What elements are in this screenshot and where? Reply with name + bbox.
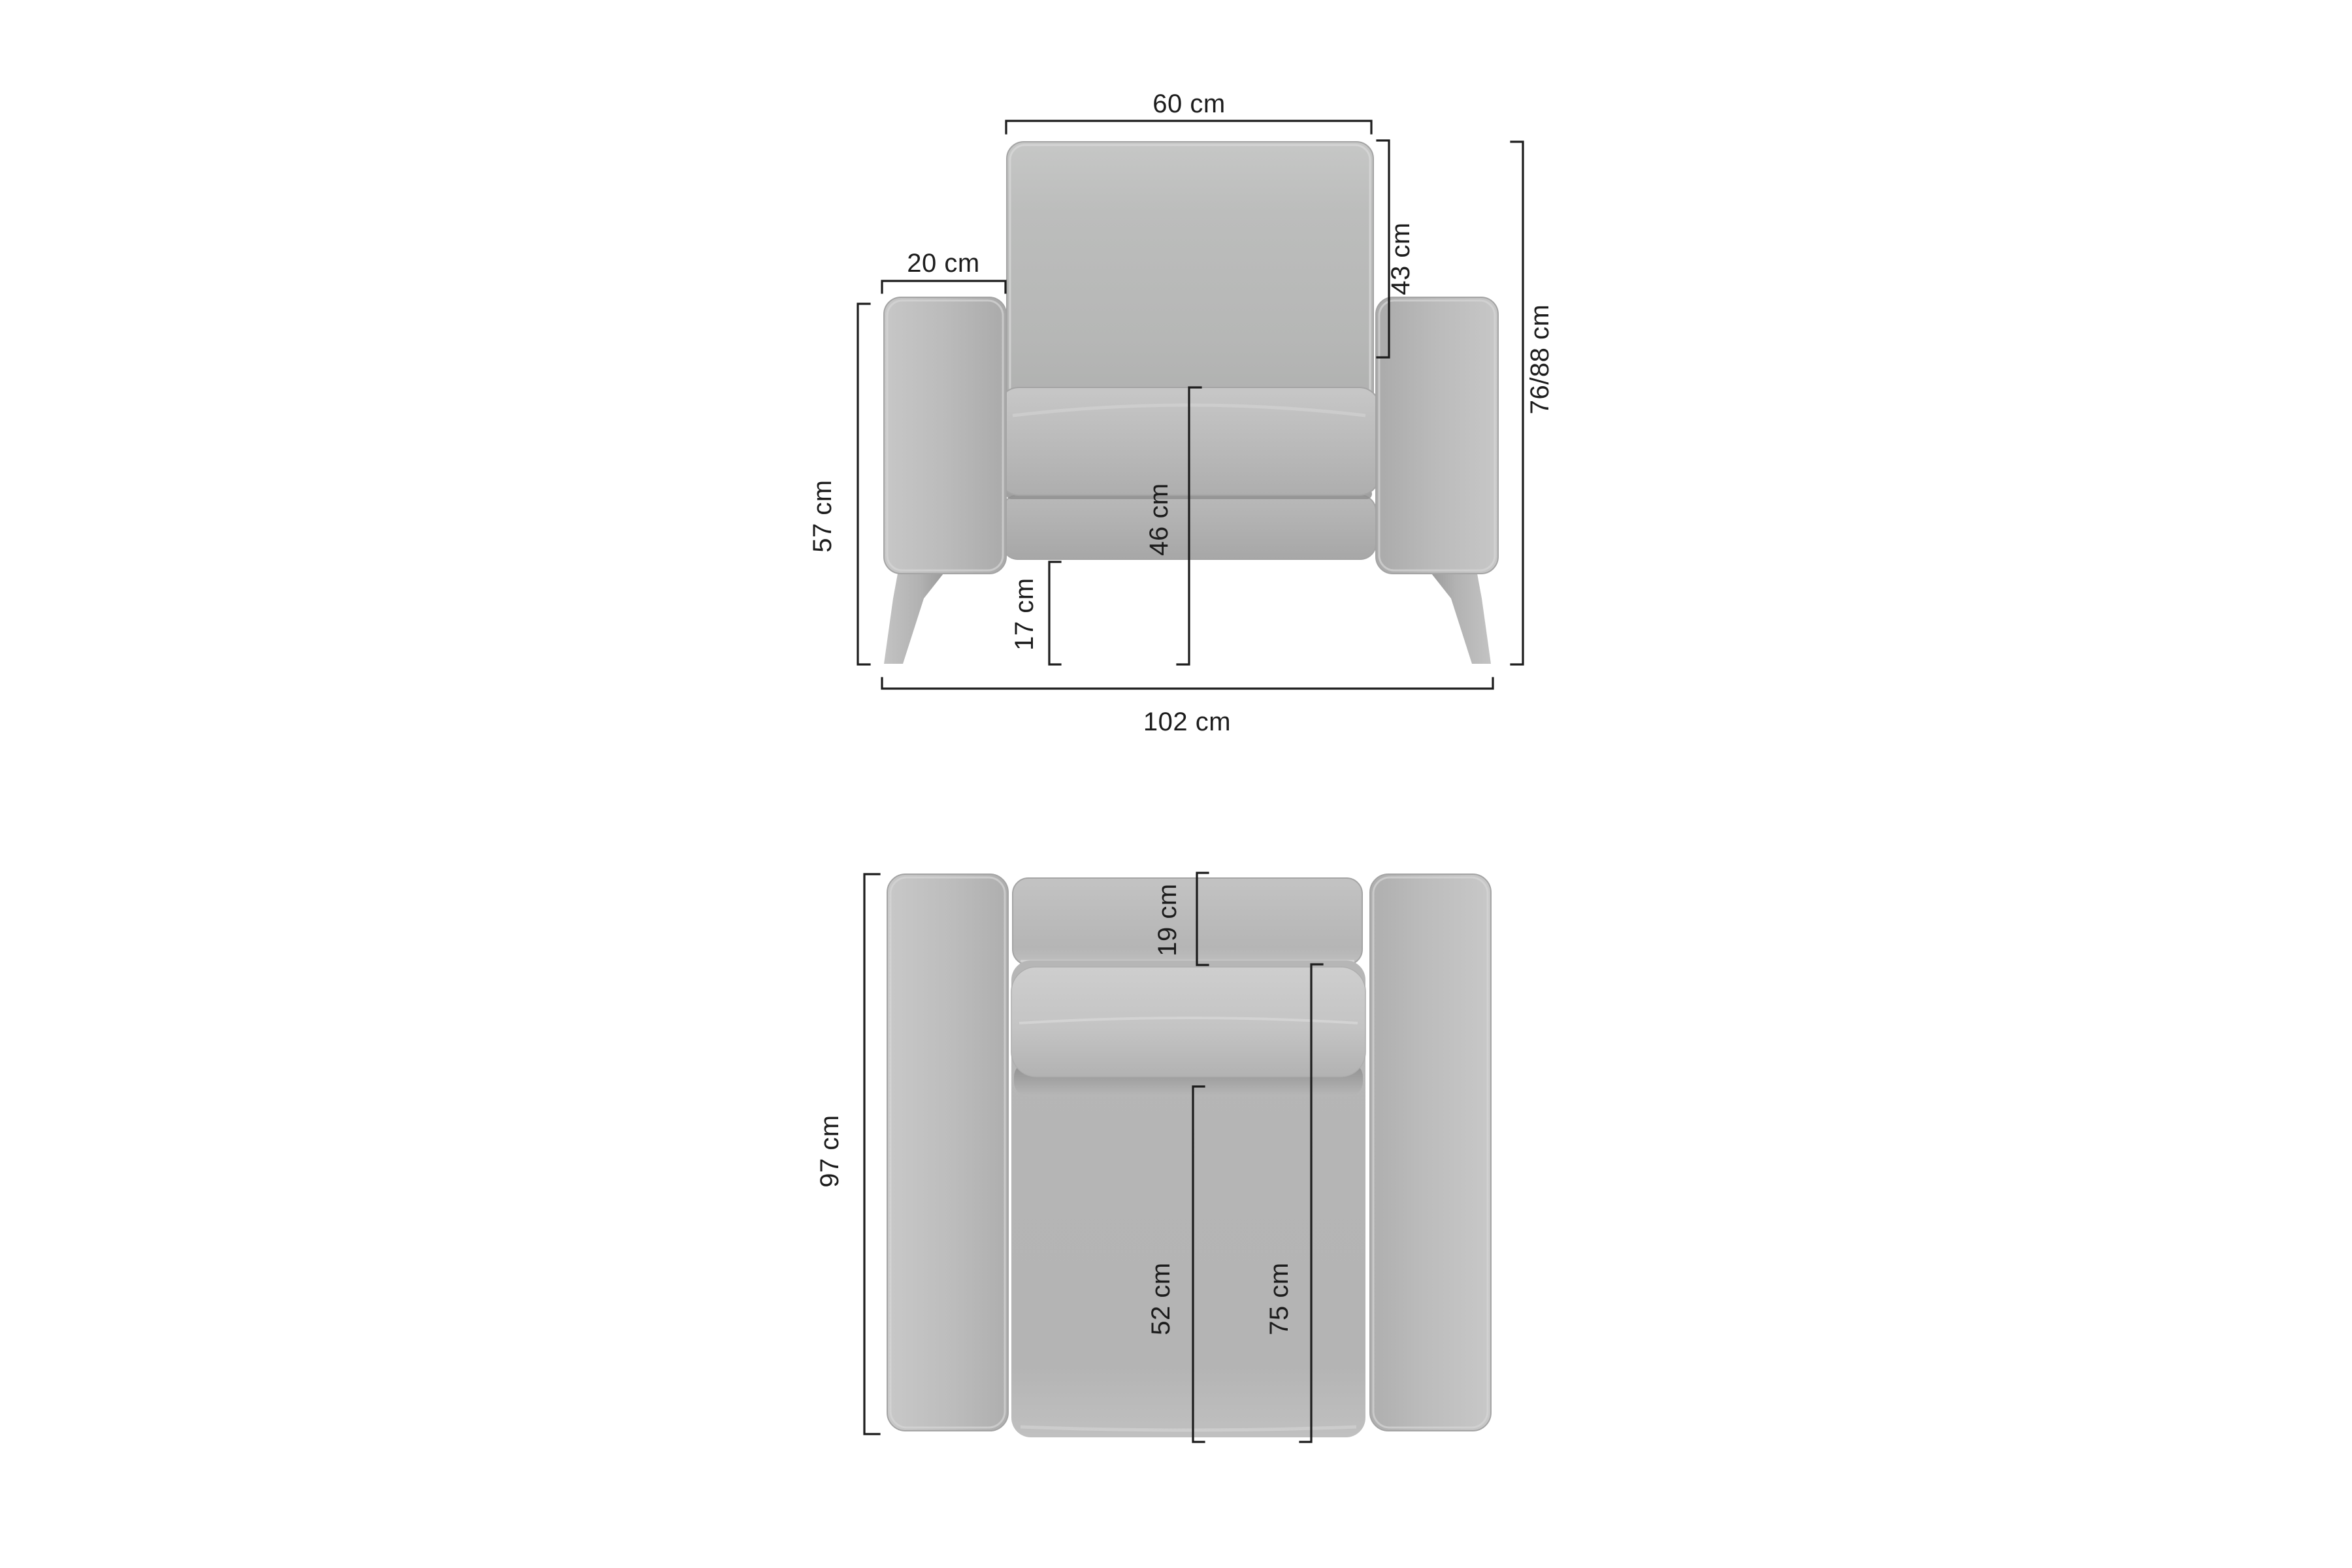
dim-armrest-height: 57 cm: [808, 304, 870, 664]
diagram-canvas: 60 cm 20 cm 43 cm 76/88 cm 57 cm 46 cm: [0, 0, 2352, 1568]
dim-overall-height-label: 76/88 cm: [1526, 304, 1554, 415]
dim-armrest-width-label: 20 cm: [907, 249, 979, 278]
top-view: 97 cm 19 cm 75 cm 52 cm: [815, 873, 1491, 1442]
dim-armrest-width: 20 cm: [882, 249, 1005, 293]
dim-seat-depth-label: 52 cm: [1147, 1262, 1175, 1335]
front-backrest-cushion: [1007, 142, 1373, 423]
dim-leg-height-label: 17 cm: [1010, 578, 1039, 650]
top-left-armrest: [887, 874, 1008, 1431]
dim-overall-depth: 97 cm: [815, 874, 879, 1434]
dim-overall-width: 102 cm: [882, 678, 1493, 736]
dim-backrest-width-label: 60 cm: [1152, 90, 1225, 118]
dim-overall-width-label: 102 cm: [1143, 708, 1231, 736]
dim-overall-height: 76/88 cm: [1511, 142, 1554, 664]
dim-backrest-height-label: 43 cm: [1386, 222, 1415, 295]
dim-overall-depth-label: 97 cm: [815, 1115, 844, 1187]
dim-seat-height-label: 46 cm: [1145, 483, 1173, 555]
front-view: 60 cm 20 cm 43 cm 76/88 cm 57 cm 46 cm: [808, 90, 1554, 736]
top-right-armrest: [1370, 874, 1491, 1431]
front-left-leg: [884, 574, 943, 664]
top-backrest: [1013, 878, 1362, 965]
dim-armrest-height-label: 57 cm: [808, 480, 837, 552]
dim-backrest-width: 60 cm: [1006, 90, 1371, 133]
front-right-leg: [1431, 574, 1491, 664]
dim-leg-height: 17 cm: [1010, 562, 1060, 664]
front-left-armrest: [884, 297, 1006, 574]
dim-inner-depth-label: 75 cm: [1265, 1262, 1294, 1335]
front-right-armrest: [1376, 297, 1498, 574]
dim-backrest-depth-label: 19 cm: [1153, 883, 1182, 956]
furniture-dimension-diagram: 60 cm 20 cm 43 cm 76/88 cm 57 cm 46 cm: [0, 0, 2352, 1568]
